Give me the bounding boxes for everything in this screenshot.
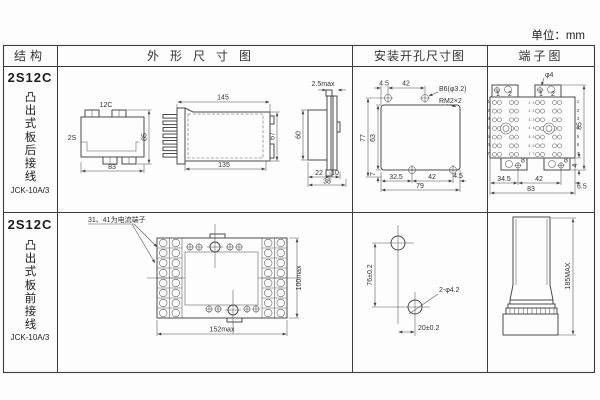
terminal-row-numbers-left: 1 2 3 4 5 6 7 bbox=[486, 98, 491, 159]
current-terminal-note: 31、41为电流端子 bbox=[88, 215, 157, 263]
model-row1: 2S12C bbox=[3, 70, 57, 85]
dim-7: 7 bbox=[370, 172, 377, 176]
screw-label-left: 8 bbox=[521, 158, 525, 165]
cutout-outline bbox=[381, 93, 460, 175]
dim-135: 135 bbox=[218, 162, 230, 169]
dim-4-tab: 4 bbox=[572, 163, 579, 167]
dim-85: 85 bbox=[142, 133, 149, 141]
dim-10: 10 bbox=[331, 170, 339, 177]
header-outline: 外形尺寸图 bbox=[57, 45, 352, 66]
outline-drawing-front-wiring: 31、41为电流端子 152max bbox=[57, 212, 352, 373]
dim-32-5: 32.5 bbox=[389, 174, 403, 181]
dim-20: 20±0.2 bbox=[418, 325, 439, 332]
profile-dims: 185MAX bbox=[551, 218, 576, 335]
relay-profile bbox=[503, 217, 558, 335]
wiring-type-row2: 凸出式板前接线 bbox=[23, 240, 38, 332]
dim-77: 77 bbox=[360, 134, 367, 142]
dim-34-5: 34.5 bbox=[497, 176, 511, 183]
dim-2-5max: 2.5max bbox=[312, 81, 335, 88]
dim-67: 67 bbox=[270, 132, 277, 140]
terminal-row-numbers-mid-right: 1 2 3 4 5 6 7 bbox=[532, 99, 536, 160]
mounting-hole-drawing-rear: 4.5 42 B6(φ3.2) RM2×2 77 63 7 32.5 42 4.… bbox=[352, 66, 487, 212]
outline-drawing-rear-wiring: 12C 2S 85 83 145 bbox=[57, 66, 352, 212]
header-terminal: 端子图 bbox=[487, 45, 595, 66]
front-view: 12C 2S 85 83 bbox=[68, 102, 152, 173]
dim-83-terminal: 83 bbox=[527, 186, 535, 193]
model-row2: 2S12C bbox=[3, 217, 57, 232]
dim-63: 63 bbox=[370, 134, 377, 142]
dim-83: 83 bbox=[108, 164, 116, 171]
product-code-row2: JCK-10A/3 bbox=[3, 333, 57, 342]
mounting-dims: 4.5 42 B6(φ3.2) RM2×2 77 63 7 32.5 42 4.… bbox=[360, 81, 467, 193]
hole-phi4-label: φ4 bbox=[545, 72, 554, 79]
dim-42-terminal: 42 bbox=[535, 176, 543, 183]
screw-label-right: 8 bbox=[564, 158, 568, 165]
panel-cut-view: 2.5max 60 22 10 38 bbox=[296, 81, 347, 187]
dim-100max: 100max bbox=[296, 265, 303, 290]
corner-spec-label: RM2×2 bbox=[439, 98, 462, 105]
front-mounting-holes: 76±0.2 2-φ4.2 20±0.2 bbox=[367, 225, 460, 336]
col-label-1a: 1 bbox=[496, 91, 500, 98]
mounting-hole-drawing-front: 76±0.2 2-φ4.2 20±0.2 bbox=[352, 212, 487, 373]
dim-42-bottom: 42 bbox=[428, 174, 436, 181]
dim-79: 79 bbox=[416, 183, 424, 190]
dim-4-5-top: 4.5 bbox=[379, 81, 389, 88]
dim-152max: 152max bbox=[210, 327, 235, 334]
note-text: 31、41为电流端子 bbox=[88, 215, 146, 224]
datasheet-page: 单位：mm 结构 外形尺寸图 安装开孔尺寸图 端子图 2S12C 凸出式板后接线… bbox=[0, 0, 600, 400]
front-wiring-body bbox=[147, 224, 297, 334]
terminal-row-numbers-right: 1 2 3 4 5 6 7 bbox=[576, 98, 581, 159]
hole-spec-2phi42: 2-φ4.2 bbox=[439, 287, 460, 294]
wiring-type-row1: 凸出式板后接线 bbox=[23, 92, 38, 184]
dim-4-5-bottom: 4.5 bbox=[453, 173, 463, 180]
relay-profile-drawing: 185MAX bbox=[487, 212, 595, 373]
dim-60: 60 bbox=[296, 131, 303, 139]
dim-12c: 12C bbox=[100, 102, 113, 109]
header-mounting: 安装开孔尺寸图 bbox=[352, 45, 487, 66]
col-label-2a: 2 bbox=[508, 91, 512, 98]
dim-22: 22 bbox=[315, 170, 323, 177]
dim-42-top: 42 bbox=[402, 81, 410, 88]
col-label-1b: 1 bbox=[539, 91, 543, 98]
header-structure: 结构 bbox=[3, 45, 57, 66]
dim-6-5: 6.5 bbox=[577, 184, 587, 191]
hole-spec-label: B6(φ3.2) bbox=[439, 86, 467, 93]
product-code-row1: JCK-10A/3 bbox=[3, 186, 57, 195]
dim-2s: 2S bbox=[68, 135, 77, 142]
col-label-2b: 2 bbox=[551, 91, 555, 98]
dim-38: 38 bbox=[323, 179, 331, 186]
dim-145: 145 bbox=[217, 95, 229, 102]
side-view: 145 135 67 bbox=[163, 95, 280, 172]
dim-76: 76±0.2 bbox=[367, 264, 374, 285]
dim-185max: 185MAX bbox=[565, 262, 572, 289]
